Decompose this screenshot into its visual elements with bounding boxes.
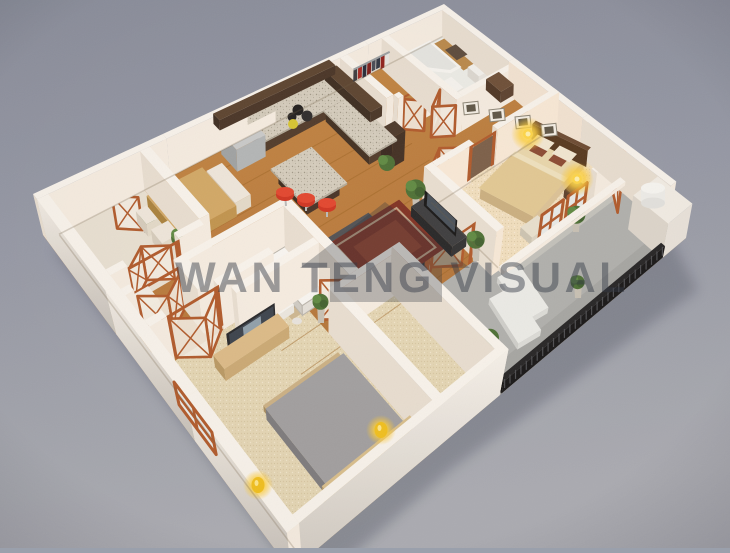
svg-text:WAN TENG VISUAL: WAN TENG VISUAL (175, 254, 629, 302)
